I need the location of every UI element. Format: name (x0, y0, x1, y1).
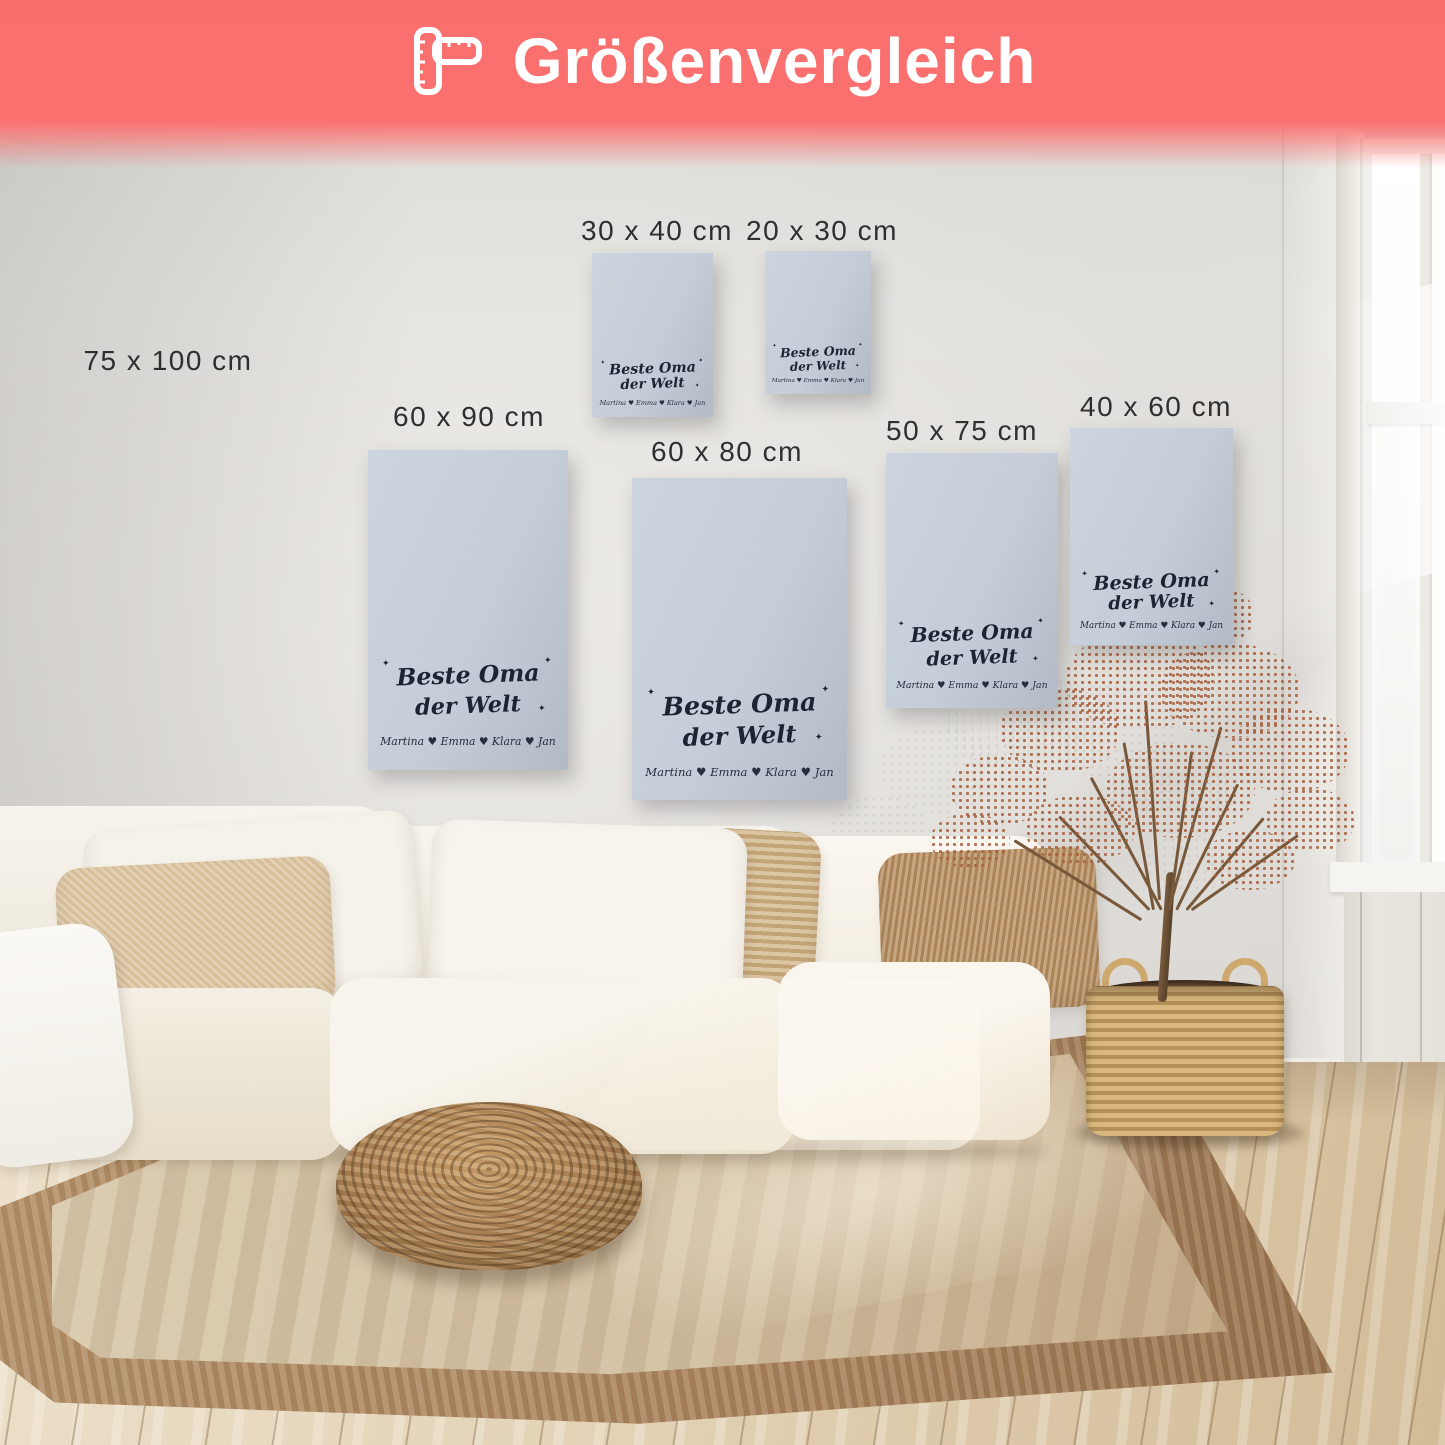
sparkle-icon: ✦ (815, 732, 823, 743)
poster-collage (380, 464, 556, 659)
sparkle-icon: ✦ (1032, 654, 1038, 663)
poster-title-line1: Beste Oma (368, 659, 569, 690)
poster-names: Martina ♥ Emma ♥ Klara ♥ Jan (632, 765, 847, 779)
photo-collage-poster: Beste Omader Welt✦✦✦Martina ♥ Emma ♥ Kla… (886, 453, 1058, 708)
poster-collage (599, 260, 705, 360)
sparkle-icon: ✦ (1037, 616, 1043, 625)
size-label-60x90: 60 x 90 cm (393, 401, 545, 433)
photo-collage-poster: Beste Omader Welt✦✦✦Martina ♥ Emma ♥ Kla… (1070, 428, 1233, 645)
photo-collage-poster: Beste Omader Welt✦✦✦Martina ♥ Emma ♥ Kla… (592, 253, 713, 417)
window-sill (1330, 862, 1445, 892)
rattan-pouf (336, 1102, 642, 1270)
sparkle-icon: ✦ (821, 684, 829, 695)
sparkle-icon: ✦ (772, 344, 776, 349)
poster-collage (645, 492, 834, 688)
header-banner: Größenvergleich (0, 0, 1445, 168)
poster-names: Martina ♥ Emma ♥ Klara ♥ Jan (368, 735, 568, 748)
size-label-40x60: 40 x 60 cm (1080, 391, 1232, 423)
sparkle-icon: ✦ (1209, 599, 1215, 608)
dried-flowers (1205, 830, 1295, 890)
size-label-60x80: 60 x 80 cm (651, 436, 803, 468)
photo-collage-poster: Beste Omader Welt✦✦✦Martina ♥ Emma ♥ Kla… (765, 251, 871, 394)
sparkle-icon: ✦ (1213, 567, 1219, 576)
poster-names: Martina ♥ Emma ♥ Klara ♥ Jan (886, 680, 1058, 691)
window-light-patch (1344, 278, 1445, 595)
poster-title-line1: Beste Oma (886, 620, 1059, 647)
poster-collage (896, 464, 1047, 620)
page-title: Größenvergleich (513, 24, 1037, 98)
size-label-75x100: 75 x 100 cm (83, 345, 252, 377)
poster-collage (1080, 438, 1223, 570)
poster-collage (771, 257, 864, 344)
sparkle-icon: ✦ (855, 364, 859, 369)
photo-collage-poster: Beste Omader Welt✦✦✦Martina ♥ Emma ♥ Kla… (632, 478, 847, 800)
size-label-30x40: 30 x 40 cm (581, 215, 733, 247)
size-label-20x30: 20 x 30 cm (746, 215, 898, 247)
folding-ruler-icon (409, 22, 487, 100)
sparkle-icon: ✦ (647, 687, 655, 698)
sparkle-icon: ✦ (1081, 569, 1087, 578)
poster-title-line1: Beste Oma (1070, 569, 1234, 594)
sparkle-icon: ✦ (538, 703, 546, 714)
poster-names: Martina ♥ Emma ♥ Klara ♥ Jan (765, 378, 871, 384)
size-comparison-scene: 75 x 100 cmBeste Omader Welt✦✦✦Martina ♥… (0, 0, 1445, 1445)
sparkle-icon: ✦ (382, 658, 390, 669)
sparkle-icon: ✦ (698, 358, 703, 364)
sparkle-icon: ✦ (858, 343, 862, 348)
sparkle-icon: ✦ (600, 360, 605, 366)
sparkle-icon: ✦ (695, 383, 700, 389)
size-label-50x75: 50 x 75 cm (886, 415, 1038, 447)
sparkle-icon: ✦ (898, 619, 904, 628)
dried-flowers (930, 813, 1010, 868)
sparkle-icon: ✦ (544, 655, 552, 666)
poster-names: Martina ♥ Emma ♥ Klara ♥ Jan (1070, 621, 1233, 631)
poster-names: Martina ♥ Emma ♥ Klara ♥ Jan (592, 399, 713, 407)
poster-title-line1: Beste Oma (632, 688, 848, 721)
woven-basket (1086, 986, 1284, 1136)
photo-collage-poster: Beste Omader Welt✦✦✦Martina ♥ Emma ♥ Kla… (368, 450, 568, 770)
dried-flowers (1105, 743, 1255, 838)
